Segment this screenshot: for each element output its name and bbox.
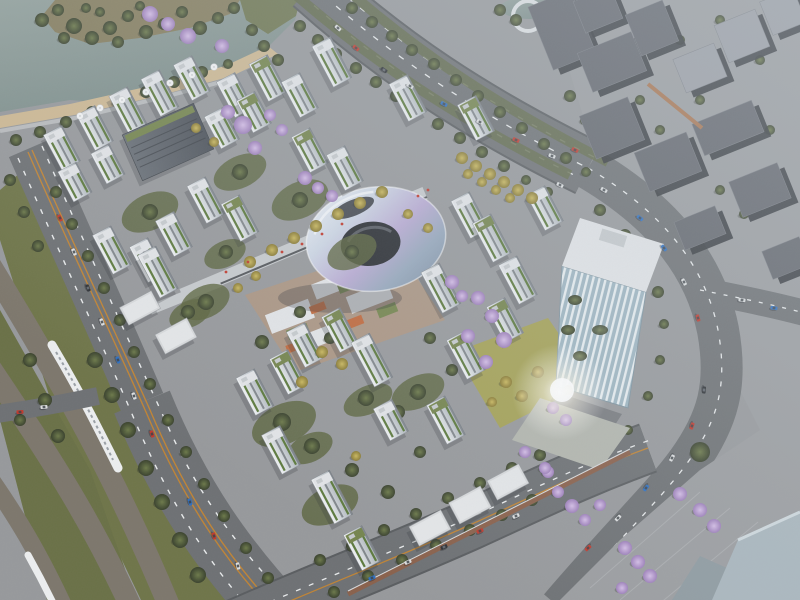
grain-overlay <box>0 0 800 600</box>
aerial-masterplan-scene <box>0 0 800 600</box>
architectural-rendering <box>0 0 800 600</box>
